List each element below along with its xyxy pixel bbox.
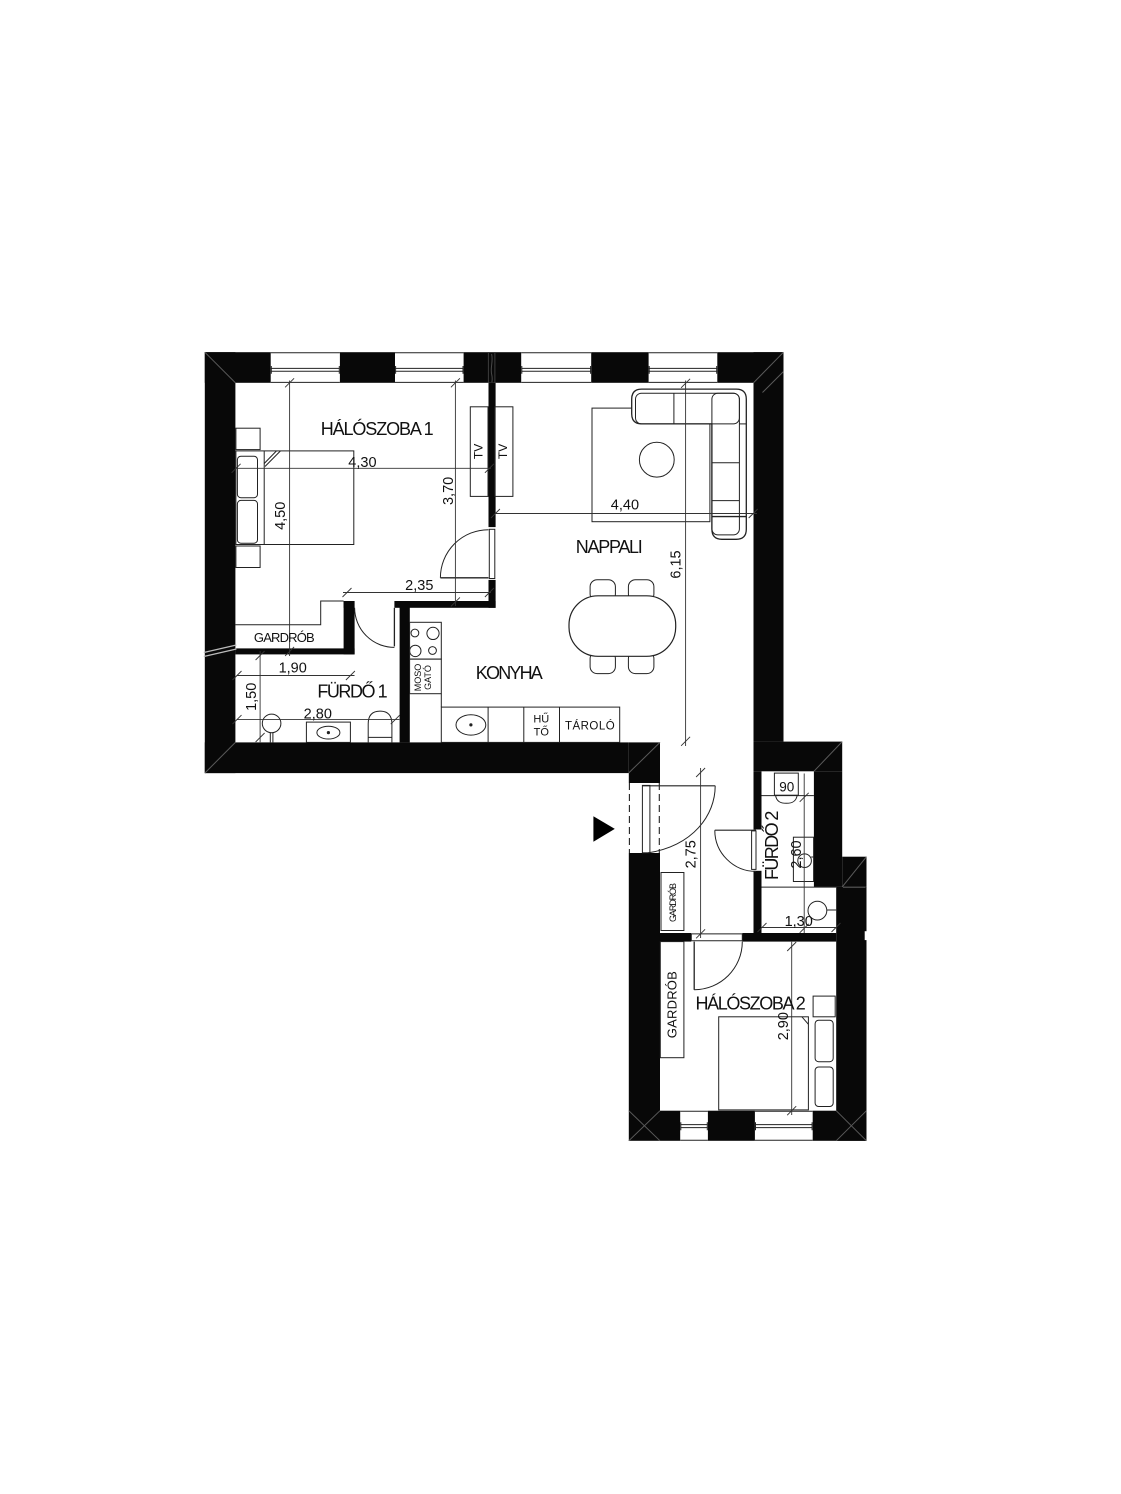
svg-text:4,30: 4,30 (348, 455, 376, 471)
svg-text:HÁLÓSZOBA 1: HÁLÓSZOBA 1 (321, 418, 434, 439)
svg-text:MOSO: MOSO (413, 664, 423, 692)
svg-text:2,90: 2,90 (776, 1012, 792, 1040)
svg-text:1,90: 1,90 (279, 661, 307, 677)
svg-text:KONYHA: KONYHA (476, 663, 543, 683)
svg-text:4,50: 4,50 (273, 502, 289, 530)
svg-text:FÜRDŐ 1: FÜRDŐ 1 (317, 681, 387, 702)
svg-text:GATÓ: GATÓ (423, 665, 433, 690)
svg-text:TŐ: TŐ (534, 725, 550, 739)
svg-text:HŰ: HŰ (533, 712, 549, 726)
svg-text:HÁLÓSZOBA 2: HÁLÓSZOBA 2 (695, 993, 805, 1014)
svg-text:1,30: 1,30 (785, 914, 813, 930)
svg-text:2,80: 2,80 (304, 707, 332, 723)
svg-text:TV: TV (496, 444, 510, 459)
svg-text:TÁROLÓ: TÁROLÓ (565, 720, 615, 733)
svg-text:4,40: 4,40 (611, 498, 639, 514)
svg-text:2,60: 2,60 (789, 840, 805, 868)
svg-text:3,70: 3,70 (441, 477, 457, 505)
svg-text:FÜRDŐ 2: FÜRDŐ 2 (761, 811, 782, 881)
svg-text:GARDRÓB: GARDRÓB (254, 630, 315, 645)
svg-text:2,35: 2,35 (405, 578, 433, 594)
svg-text:2,75: 2,75 (684, 840, 700, 868)
svg-text:GARDRÓB: GARDRÓB (665, 971, 680, 1038)
svg-text:TV: TV (472, 444, 486, 459)
svg-text:NAPPALI: NAPPALI (576, 537, 643, 557)
svg-text:6,15: 6,15 (669, 550, 685, 578)
svg-text:1,50: 1,50 (244, 683, 260, 711)
svg-text:90: 90 (779, 779, 794, 794)
svg-text:GARDRÓB: GARDRÓB (668, 883, 678, 922)
